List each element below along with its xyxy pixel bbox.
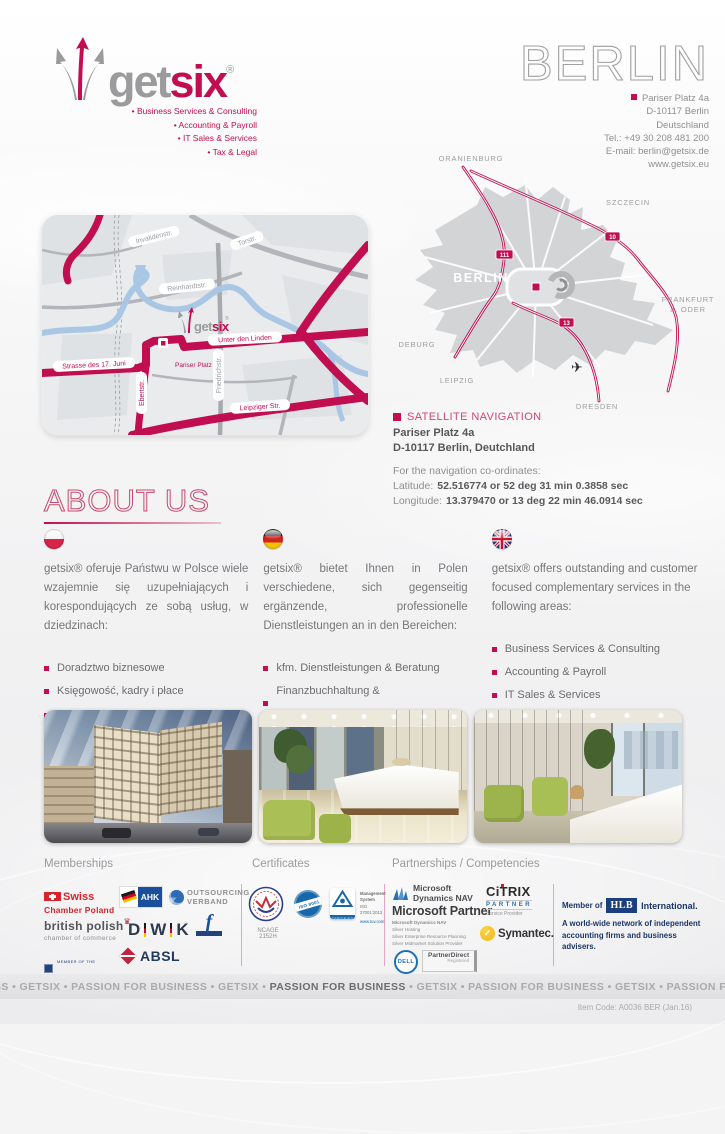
registered-mark: ®	[226, 64, 234, 76]
symantec-check-icon: ✓	[480, 926, 495, 941]
street-map-card: getsix ® Invalidenstr. Torstr. Reinhardt…	[42, 215, 368, 435]
city-label-deburg: DEBURG	[399, 340, 436, 349]
street-label-friedrichstr: Friedrichstr.	[216, 357, 223, 394]
map-logo-get: get	[194, 319, 213, 334]
street-label-ebertstr: Ebertstr.	[139, 380, 146, 406]
city-label-oranienburg: ORANIENBURG	[439, 154, 504, 163]
badge-10: 10	[609, 235, 616, 241]
flag-bar-icon	[170, 923, 172, 937]
dwk-logo: DWK	[128, 920, 189, 940]
photo-building-exterior	[44, 710, 252, 843]
globe-icon	[169, 890, 184, 905]
memberships-logos: Swiss Chamber Poland AHK OUTSOURCINGVERB…	[44, 884, 239, 970]
list-item: IT Sales & Services	[492, 684, 704, 707]
airplane-icon: ✈	[571, 359, 583, 375]
list-item: Accounting & Payroll	[492, 661, 704, 684]
city-label-berlin: BERLIN	[453, 271, 509, 285]
longitude-line: Longitude:13.379470 or 13 deg 22 min 46.…	[393, 494, 723, 509]
tuv-note: Management System ISO 27001:2013 www.tuv…	[360, 891, 382, 925]
flag-bar-icon	[144, 923, 146, 937]
satnav-address: Pariser Platz 4a D-10117 Berlin, Deutchl…	[393, 426, 723, 457]
about-us-heading: ABOUT US	[44, 483, 210, 519]
office-photos	[44, 710, 682, 843]
region-map: 111 10 13 ✈ ORANIENBURG SZCZECIN FRANKFU…	[385, 145, 725, 413]
tagline: • IT Sales & Services	[52, 132, 257, 146]
forum-square-icon	[44, 964, 53, 973]
british-polish-chamber-logo: british polish♛ chamber of commerce	[44, 917, 131, 942]
square-bullet-icon	[631, 94, 637, 100]
tuv-triangle-icon	[330, 888, 355, 910]
certificates-logos: NCAGE 2152H ISO 9001 CERTIFIED Managemen…	[248, 884, 380, 970]
absl-diamond-icon	[120, 948, 137, 965]
brochure-page: getsix® • Business Services & Consulting…	[0, 0, 725, 1024]
memberships-heading: Memberships	[44, 858, 113, 870]
tagline: • Tax & Legal	[52, 146, 257, 160]
europa-forum-logo: f	[196, 914, 222, 936]
satnav-coordinates: For the navigation co-ordinates: Latitud…	[393, 464, 723, 510]
wordmark-get: get	[108, 56, 170, 107]
hlb-logo-icon: HLB	[606, 898, 637, 913]
ahk-logo: AHK	[120, 887, 162, 907]
list-item: Księgowość, kadry i płace	[44, 680, 248, 703]
photo-reception	[259, 710, 467, 843]
list-item: kfm. Dienstleistungen & Beratung	[263, 657, 467, 680]
getsix-wordmark: getsix®	[108, 62, 234, 103]
citrix-logo: CiTRIX PARTNER Service Provider	[486, 884, 532, 917]
page-title-city: BERLIN	[520, 36, 709, 92]
square-bullet-icon	[393, 413, 401, 421]
slogan-text: SS • GETSIX • PASSION FOR BUSINESS • GET…	[0, 981, 725, 993]
brand-taglines: • Business Services & Consulting • Accou…	[52, 105, 257, 159]
satnav-intro: For the navigation co-ordinates:	[393, 464, 723, 479]
getsix-logo: getsix® • Business Services & Consulting…	[52, 36, 257, 159]
wordmark-six: six	[170, 56, 227, 107]
uk-flag-icon	[492, 529, 512, 549]
ms-dynamics-logo: MicrosoftDynamics NAV	[392, 884, 473, 904]
german-flag-arrow-icon	[120, 887, 138, 907]
satnav-title: SATELLITE NAVIGATION	[393, 411, 723, 423]
microsoft-partner-levels: Microsoft Dynamics NAV Silver Hosting Si…	[392, 920, 466, 948]
partnerships-heading: Partnerships / Competencies	[392, 858, 540, 870]
outsourcing-verband-logo: OUTSOURCINGVERBAND	[169, 889, 250, 907]
city-label-dresden: DRESDEN	[576, 402, 618, 411]
square-bullet-icon	[44, 689, 49, 694]
symantec-logo: ✓ Symantec.	[480, 926, 554, 941]
phone-line: Tel.: +49 30 208 481 200	[604, 132, 709, 145]
tagline: • Accounting & Payroll	[52, 119, 257, 133]
square-bullet-icon	[44, 666, 49, 671]
tagline: • Business Services & Consulting	[52, 105, 257, 119]
square-bullet-icon	[492, 670, 497, 675]
swiss-flag-icon	[44, 892, 61, 901]
street-label-pariser-platz: Pariser Platz	[175, 362, 212, 369]
city-label-szczecin: SZCZECIN	[606, 198, 650, 207]
square-bullet-icon	[492, 647, 497, 652]
city-label-frankfurt2: a. ODER	[670, 305, 706, 314]
ncage-badge-icon	[248, 886, 284, 922]
list-item: Doradztwo biznesowe	[44, 657, 248, 680]
latitude-line: Latitude:52.516774 or 52 deg 31 min 0.38…	[393, 479, 723, 494]
absl-logo: ABSL	[122, 948, 180, 966]
section-divider	[553, 884, 554, 966]
address-line: Deutschland	[604, 119, 709, 132]
footer-slogan-band: SS • GETSIX • PASSION FOR BUSINESS • GET…	[0, 974, 725, 999]
citrix-dot-icon	[501, 884, 504, 887]
photo-office-lounge	[474, 710, 682, 843]
map-logo-reg: ®	[225, 315, 229, 322]
ncage-badge: NCAGE 2152H	[248, 886, 288, 940]
iso-badge: ISO 9001	[294, 890, 322, 918]
dell-logo-icon: DELL	[394, 950, 418, 974]
about-intro-pl: getsix® oferuje Państwu w Polsce wiele w…	[44, 560, 248, 636]
about-intro-en: getsix® offers outstanding and customer …	[492, 560, 704, 617]
certificates-heading: Certificates	[252, 858, 310, 870]
pariser-platz-marker	[158, 338, 168, 348]
tuv-badge: CERTIFIED	[330, 888, 355, 919]
address-line: D-10117 Berlin	[604, 105, 709, 118]
hlb-international-block: Member of HLB International. A world-wid…	[562, 884, 712, 970]
square-bullet-icon	[263, 701, 268, 706]
square-bullet-icon	[263, 666, 268, 671]
badge-13: 13	[563, 321, 570, 327]
about-intro-de: getsix® bietet Ihnen in Polen verschiede…	[263, 560, 467, 636]
list-item: Business Services & Consulting	[492, 638, 704, 661]
section-divider	[384, 884, 385, 966]
item-code: Item Code: A0036 BER (Jan.16)	[578, 1003, 692, 1012]
poland-flag-icon	[44, 529, 64, 549]
partnerdirect-badge: PartnerDirect Registered	[422, 950, 477, 972]
heading-underline	[44, 522, 221, 524]
address-line: Pariser Platz 4a	[604, 92, 709, 105]
city-label-frankfurt: FRANKFURT	[662, 295, 714, 304]
getsix-arrows-icon	[52, 36, 108, 102]
dynamics-nav-icon	[392, 887, 409, 900]
germany-flag-icon	[263, 529, 283, 549]
square-bullet-icon	[492, 693, 497, 698]
partnerships-logos: MicrosoftDynamics NAV Microsoft Partner …	[392, 884, 550, 970]
hlb-description: A world-wide network of independent acco…	[562, 918, 712, 953]
badge-111: 111	[500, 253, 510, 259]
street-map: getsix ® Invalidenstr. Torstr. Reinhardt…	[42, 215, 368, 435]
microsoft-partner-logo: Microsoft Partner	[392, 904, 492, 918]
city-label-leipzig: LEIPZIG	[440, 376, 474, 385]
swiss-chamber-logo: Swiss Chamber Poland	[44, 887, 114, 915]
satellite-navigation-block: SATELLITE NAVIGATION Pariser Platz 4a D-…	[393, 411, 723, 509]
office-location-marker	[532, 283, 540, 291]
